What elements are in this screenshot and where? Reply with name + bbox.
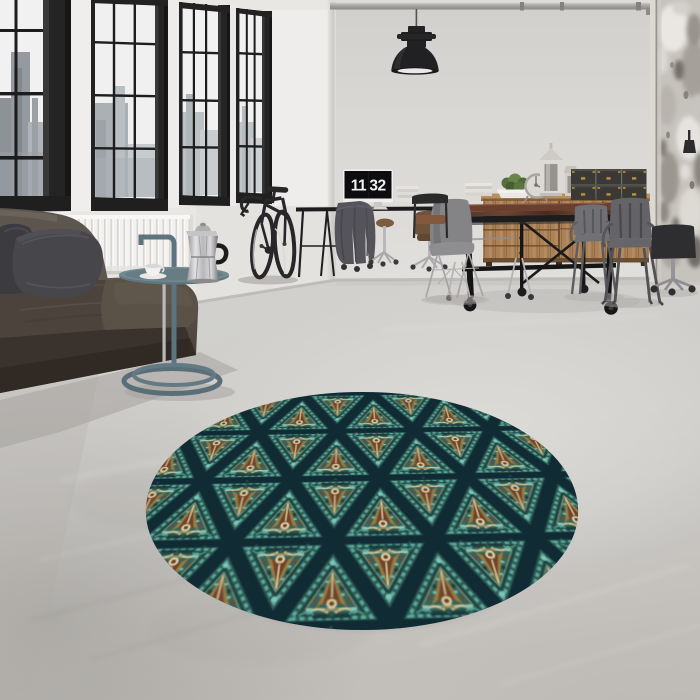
svg-text:11: 11 — [351, 178, 367, 195]
svg-text:32: 32 — [369, 178, 385, 195]
